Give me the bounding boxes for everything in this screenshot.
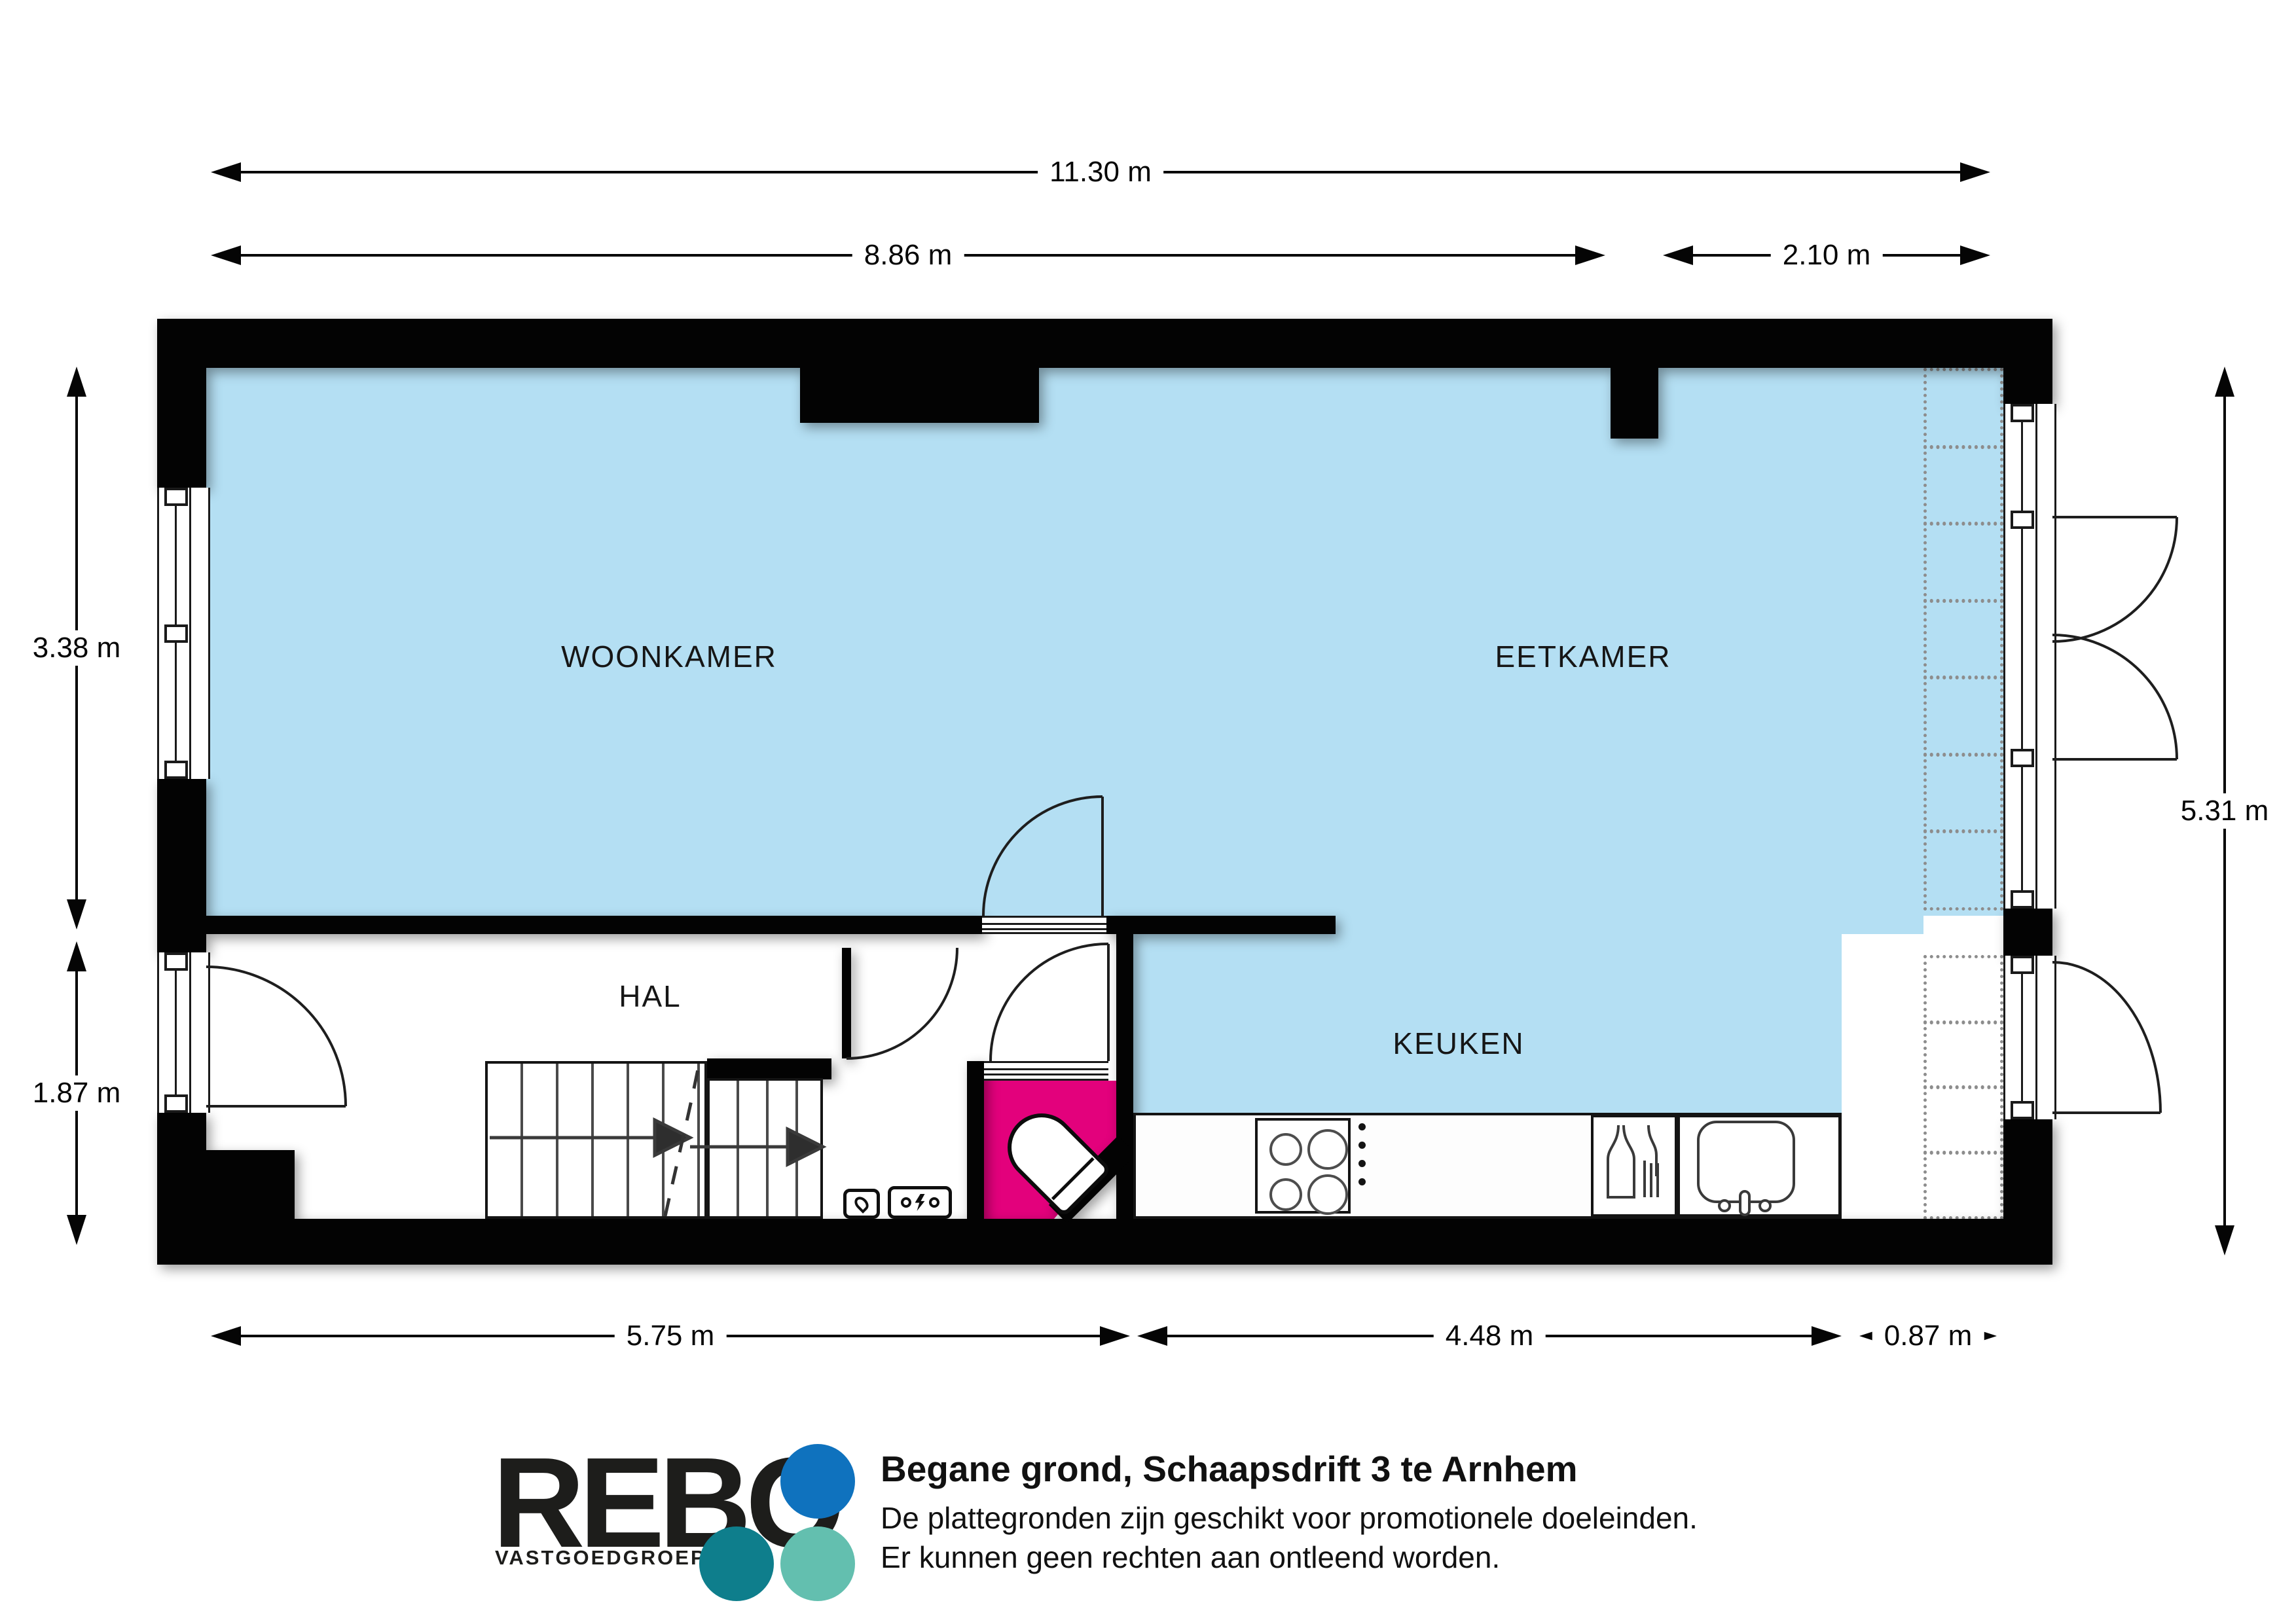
stair-arrow-icon [788, 1129, 823, 1164]
room-label-hal: HAL [619, 979, 681, 1014]
stair-direction [490, 1120, 823, 1164]
door-arc-toilet [991, 944, 1108, 1061]
door-arc-hall [847, 948, 957, 1058]
dimension-right-total: 5.31 m [2212, 367, 2238, 1255]
disclaimer-line-2: Er kunnen geen rechten aan ontleend word… [881, 1540, 1500, 1575]
plan-title: Begane grond, Schaapsdrift 3 te Arnhem [881, 1448, 1578, 1490]
door-arc-french-top [2052, 517, 2177, 641]
logo-dot-blue [780, 1444, 855, 1519]
dimension-bottom-right: 0.87 m [1859, 1323, 1997, 1349]
dimension-label: 1.87 m [21, 1075, 133, 1111]
dimension-top-left: 8.86 m [211, 242, 1605, 268]
dimension-label: 4.48 m [1434, 1318, 1546, 1354]
dimension-label: 11.30 m [1038, 154, 1163, 190]
logo-dot-teal [699, 1526, 774, 1601]
dimension-bottom-middle: 4.48 m [1137, 1323, 1842, 1349]
disclaimer-line-1: De plattegronden zijn geschikt voor prom… [881, 1500, 1698, 1536]
rebo-logo-subtitle: VASTGOEDGROEP [495, 1546, 706, 1570]
dimension-top-total: 11.30 m [211, 159, 1990, 185]
stair-arrow-icon [655, 1120, 690, 1155]
dimension-label: 5.75 m [615, 1318, 727, 1354]
dimension-left-lower: 1.87 m [64, 941, 90, 1245]
door-arc-french-bottom [2052, 635, 2177, 759]
room-label-eetkamer: EETKAMER [1495, 639, 1671, 674]
door-arc-living [983, 797, 1102, 916]
dimension-label: 5.31 m [2169, 793, 2281, 829]
room-label-woonkamer: WOONKAMER [561, 639, 777, 674]
dimension-label: 3.38 m [21, 630, 133, 666]
dimension-bottom-left: 5.75 m [211, 1323, 1130, 1349]
dimension-top-right: 2.10 m [1663, 242, 1990, 268]
dimension-label: 8.86 m [852, 238, 964, 273]
door-arc-kitchen [2052, 962, 2160, 1113]
logo-dot-seafoam [780, 1526, 855, 1601]
dimension-label: 0.87 m [1872, 1318, 1984, 1354]
dimension-left-upper: 3.38 m [64, 367, 90, 929]
dimension-label: 2.10 m [1771, 238, 1883, 273]
door-arc-front [206, 967, 346, 1106]
room-label-keuken: KEUKEN [1393, 1026, 1524, 1061]
floorplan-page: WOONKAMER EETKAMER HAL KEUKEN 11.30 m 8.… [0, 0, 2296, 1624]
